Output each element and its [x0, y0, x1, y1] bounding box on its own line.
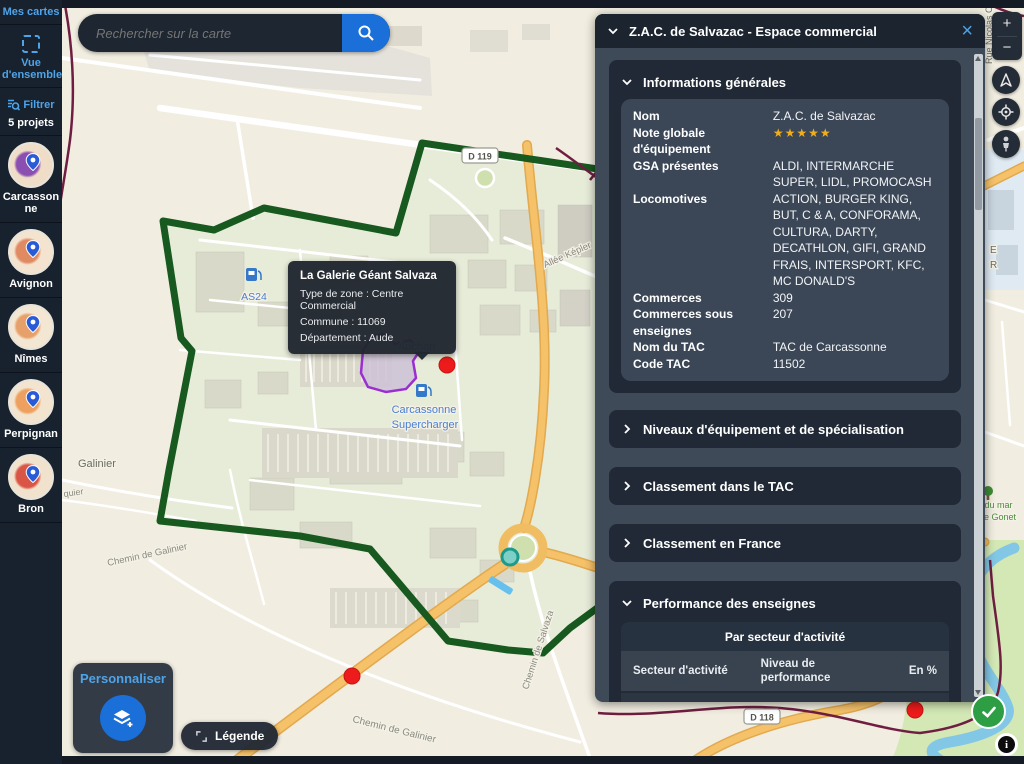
my-location-button[interactable] — [992, 98, 1020, 126]
chevron-right-icon — [621, 423, 633, 435]
legende-label: Légende — [215, 729, 264, 743]
personnaliser-card: Personnaliser — [73, 663, 173, 753]
info-row: Nom du TACTAC de Carcassonne — [633, 339, 937, 356]
info-value: ACTION, BURGER KING, BUT, C & A, CONFORA… — [773, 191, 937, 290]
col-header-sector: Secteur d'activité — [633, 664, 761, 678]
layers-plus-icon — [111, 706, 135, 730]
info-row: GSA présentesALDI, INTERMARCHE SUPER, LI… — [633, 158, 937, 191]
info-label: Nom — [633, 108, 773, 125]
map-label: Carcassonne — [392, 404, 457, 416]
search-input[interactable] — [78, 26, 342, 41]
details-panel: Z.A.C. de Salvazac - Espace commercial ×… — [595, 14, 985, 702]
info-icon: i — [998, 736, 1015, 753]
mes-cartes-label: Mes cartes — [2, 6, 60, 18]
roundabout-small — [476, 169, 494, 187]
table-subtitle: Par secteur d'activité — [621, 622, 949, 651]
section-title: Performance des enseignes — [643, 596, 816, 611]
map-label: R — [990, 260, 997, 271]
section-performance: Performance des enseignes Par secteur d'… — [609, 581, 961, 702]
panel-scrollbar[interactable] — [974, 54, 983, 697]
collapsed-sections: Niveaux d'équipement et de spécialisatio… — [609, 410, 961, 562]
close-icon[interactable]: × — [961, 21, 973, 41]
overview-icon — [22, 35, 40, 53]
info-value: TAC de Carcassonne — [773, 339, 937, 356]
project-thumbnail — [8, 379, 54, 425]
project-label: Avignon — [2, 278, 60, 290]
customize-layers-button[interactable] — [100, 695, 146, 741]
tooltip-title: La Galerie Géant Salvaza — [300, 270, 444, 282]
tooltip-line: Département : Aude — [300, 332, 444, 344]
top-chrome-bar — [0, 0, 1024, 8]
compass-icon — [998, 72, 1014, 88]
info-label: Note globale d'équipement — [633, 125, 773, 158]
info-value: 207 — [773, 306, 937, 339]
projects-count: 5 projets — [2, 117, 60, 129]
chevron-down-icon — [607, 25, 619, 37]
map-pin-icon — [23, 389, 43, 409]
table-header-row: Secteur d'activité Niveau de performance… — [621, 651, 949, 691]
info-label: Code TAC — [633, 356, 773, 373]
info-label: Nom du TAC — [633, 339, 773, 356]
panel-title: Z.A.C. de Salvazac - Espace commercial — [629, 24, 951, 39]
performance-table-card: Par secteur d'activité Secteur d'activit… — [621, 622, 949, 702]
info-value: Z.A.C. de Salvazac — [773, 108, 937, 125]
zoom-in-button[interactable]: + — [992, 12, 1022, 36]
info-button[interactable]: i — [995, 733, 1018, 756]
info-label: GSA présentes — [633, 158, 773, 191]
section-title: Informations générales — [643, 75, 786, 90]
sidebar-item-mes-cartes[interactable]: Mes cartes — [0, 0, 62, 25]
road-shield: D 118 — [744, 709, 780, 724]
col-header-pct: En % — [870, 664, 937, 678]
map-label: E — [990, 245, 997, 256]
filter-icon — [7, 98, 20, 111]
star-rating: ★★★★★ — [773, 125, 937, 158]
chevron-right-icon — [621, 480, 633, 492]
info-row: Note globale d'équipement★★★★★ — [633, 125, 937, 158]
scroll-down-icon[interactable] — [975, 690, 981, 695]
app-window: GalinierquierChemin de GalinierChemin de… — [0, 0, 1024, 764]
search-button[interactable] — [342, 14, 390, 52]
map-pin-icon — [23, 314, 43, 334]
section-header-informations[interactable]: Informations générales — [621, 69, 949, 95]
map-tooltip: La Galerie Géant Salvaza Type de zone : … — [288, 261, 456, 354]
map-label: AS24 — [241, 291, 267, 303]
tooltip-line: Type de zone : Centre Commercial — [300, 288, 444, 312]
svg-text:D 119: D 119 — [468, 152, 492, 162]
pegman-icon — [999, 136, 1013, 152]
sidebar: Mes cartes Vue d'ensemble Filtrer 5 proj… — [0, 0, 62, 764]
panel-header[interactable]: Z.A.C. de Salvazac - Espace commercial × — [595, 14, 985, 48]
project-thumbnail — [8, 304, 54, 350]
info-row: Commerces309 — [633, 290, 937, 307]
scrollbar-thumb[interactable] — [975, 118, 982, 210]
section-title: Classement en France — [643, 536, 781, 551]
sidebar-item-3[interactable]: Perpignan — [0, 373, 62, 448]
table-row: Alimentaire42 % — [621, 691, 949, 702]
map-label: Supercharger — [392, 419, 459, 431]
street-view-button[interactable] — [992, 130, 1020, 158]
project-label: Nîmes — [2, 353, 60, 365]
info-row: NomZ.A.C. de Salvazac — [633, 108, 937, 125]
info-row: LocomotivesACTION, BURGER KING, BUT, C &… — [633, 191, 937, 290]
info-value: 309 — [773, 290, 937, 307]
section-header-performance[interactable]: Performance des enseignes — [621, 590, 949, 616]
project-label: Perpignan — [2, 428, 60, 440]
info-row: Commerces sous enseignes207 — [633, 306, 937, 339]
tooltip-line: Commune : 11069 — [300, 316, 444, 328]
sidebar-item-filtrer[interactable]: Filtrer — [2, 94, 60, 117]
sidebar-item-4[interactable]: Bron — [0, 448, 62, 523]
search-icon — [357, 24, 375, 42]
project-thumbnail — [8, 454, 54, 500]
target-icon — [998, 104, 1014, 120]
info-label: Locomotives — [633, 191, 773, 290]
filtrer-label: Filtrer — [23, 99, 54, 111]
legende-button[interactable]: Légende — [181, 722, 278, 750]
map-search-bar — [78, 14, 390, 52]
project-label: Bron — [2, 503, 60, 515]
svg-text:D 118: D 118 — [750, 713, 774, 723]
section-title: Classement dans le TAC — [643, 479, 794, 494]
bottom-chrome-bar — [0, 756, 1024, 764]
check-icon — [980, 703, 998, 721]
project-thumbnail — [8, 142, 54, 188]
section-collapsed-2[interactable]: Classement en France — [609, 524, 961, 562]
project-list: Carcassonne Avignon Nîmes Perpignan Bron — [0, 136, 62, 523]
info-value: ALDI, INTERMARCHE SUPER, LIDL, PROMOCASH — [773, 158, 937, 191]
info-value: 11502 — [773, 356, 937, 373]
project-label: Carcassonne — [2, 191, 60, 215]
section-collapsed-0[interactable]: Niveaux d'équipement et de spécialisatio… — [609, 410, 961, 448]
map-pin-icon — [23, 152, 43, 172]
section-title: Niveaux d'équipement et de spécialisatio… — [643, 422, 904, 437]
section-informations-generales: Informations générales NomZ.A.C. de Salv… — [609, 60, 961, 393]
personnaliser-label: Personnaliser — [73, 671, 173, 686]
expand-icon — [195, 730, 208, 743]
info-label: Commerces — [633, 290, 773, 307]
sidebar-item-vue-densemble[interactable]: Vue d'ensemble — [0, 25, 62, 88]
map-label: Galinier — [78, 458, 116, 470]
map-pin-icon — [23, 239, 43, 259]
sidebar-item-2[interactable]: Nîmes — [0, 298, 62, 373]
panel-body: Informations générales NomZ.A.C. de Salv… — [595, 48, 985, 702]
scroll-up-icon[interactable] — [975, 56, 981, 61]
sidebar-item-0[interactable]: Carcassonne — [0, 136, 62, 223]
table-rows: Alimentaire42 %Articles De Sports6 % — [621, 691, 949, 702]
road-shield: D 119 — [462, 148, 498, 163]
col-header-level: Niveau de performance — [761, 657, 870, 685]
info-row: Code TAC11502 — [633, 356, 937, 373]
chevron-right-icon — [621, 537, 633, 549]
validate-button[interactable] — [971, 694, 1006, 729]
info-label: Commerces sous enseignes — [633, 306, 773, 339]
compass-button[interactable] — [992, 66, 1020, 94]
chevron-down-icon — [621, 597, 633, 609]
zoom-out-button[interactable]: − — [992, 37, 1022, 61]
vue-densemble-label: Vue d'ensemble — [2, 57, 60, 81]
zoom-control: + − — [992, 12, 1022, 60]
section-collapsed-1[interactable]: Classement dans le TAC — [609, 467, 961, 505]
sidebar-filter-group: Filtrer 5 projets — [0, 88, 62, 136]
chevron-down-icon — [621, 76, 633, 88]
info-rows-card: NomZ.A.C. de SalvazacNote globale d'équi… — [621, 99, 949, 381]
project-thumbnail — [8, 229, 54, 275]
map-pin-icon — [23, 464, 43, 484]
sidebar-item-1[interactable]: Avignon — [0, 223, 62, 298]
